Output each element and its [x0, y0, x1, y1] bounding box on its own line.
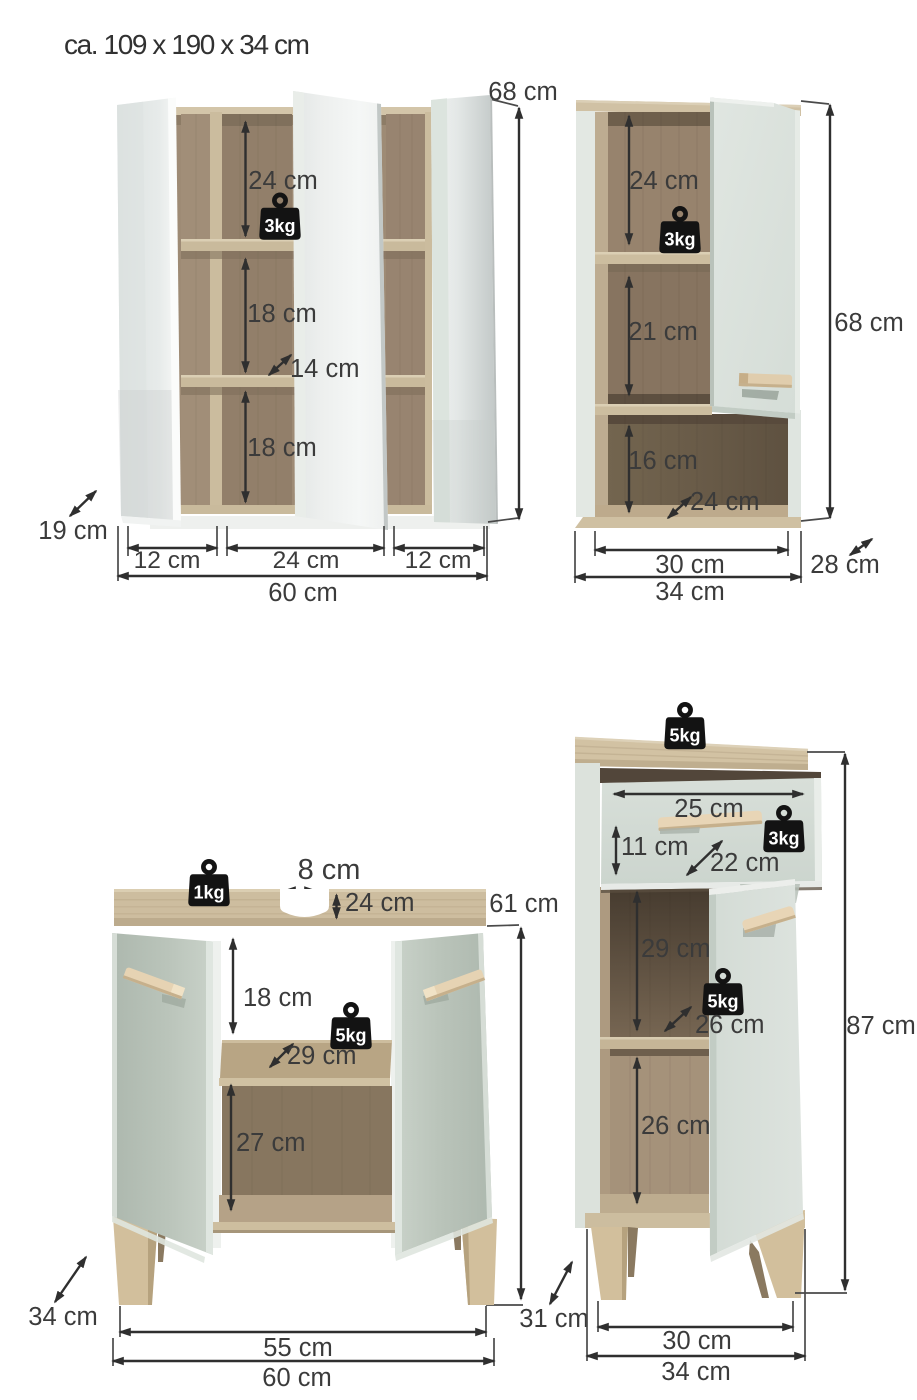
svg-text:68 cm: 68 cm	[834, 309, 903, 337]
svg-text:18 cm: 18 cm	[243, 984, 312, 1012]
svg-text:31 cm: 31 cm	[519, 1305, 588, 1333]
svg-text:5kg: 5kg	[707, 992, 738, 1012]
svg-text:18 cm: 18 cm	[247, 434, 316, 462]
svg-text:60 cm: 60 cm	[262, 1364, 331, 1392]
svg-text:5kg: 5kg	[669, 726, 700, 746]
svg-text:12 cm: 12 cm	[405, 547, 472, 574]
svg-text:30 cm: 30 cm	[662, 1327, 731, 1355]
svg-text:60 cm: 60 cm	[268, 579, 337, 607]
svg-text:55 cm: 55 cm	[263, 1334, 332, 1362]
svg-text:26 cm: 26 cm	[695, 1011, 764, 1039]
svg-text:24 cm: 24 cm	[345, 889, 414, 917]
svg-text:19 cm: 19 cm	[38, 517, 107, 545]
svg-text:26 cm: 26 cm	[641, 1112, 710, 1140]
svg-text:24 cm: 24 cm	[690, 488, 759, 516]
svg-text:29 cm: 29 cm	[641, 935, 710, 963]
svg-text:29 cm: 29 cm	[287, 1042, 356, 1070]
svg-text:3kg: 3kg	[264, 216, 295, 236]
svg-text:34 cm: 34 cm	[655, 578, 724, 606]
svg-text:34 cm: 34 cm	[661, 1358, 730, 1386]
svg-text:3kg: 3kg	[768, 829, 799, 849]
svg-text:12 cm: 12 cm	[134, 547, 201, 574]
svg-text:30 cm: 30 cm	[655, 551, 724, 579]
svg-text:21 cm: 21 cm	[628, 318, 697, 346]
svg-text:24 cm: 24 cm	[273, 547, 340, 574]
svg-text:27 cm: 27 cm	[236, 1129, 305, 1157]
svg-text:3kg: 3kg	[664, 230, 695, 250]
svg-text:24 cm: 24 cm	[629, 167, 698, 195]
svg-text:11 cm: 11 cm	[621, 833, 689, 861]
svg-text:18 cm: 18 cm	[247, 300, 316, 328]
svg-text:34 cm: 34 cm	[28, 1303, 97, 1331]
svg-text:87 cm: 87 cm	[846, 1012, 915, 1040]
svg-text:28 cm: 28 cm	[810, 551, 879, 579]
svg-text:8 cm: 8 cm	[298, 854, 361, 886]
svg-text:16 cm: 16 cm	[628, 447, 697, 475]
svg-text:22 cm: 22 cm	[710, 849, 779, 877]
svg-text:1kg: 1kg	[193, 883, 224, 903]
svg-text:24 cm: 24 cm	[248, 167, 317, 195]
svg-text:61 cm: 61 cm	[489, 890, 558, 918]
svg-text:25 cm: 25 cm	[674, 795, 743, 823]
svg-text:ca. 109 x 190 x 34 cm: ca. 109 x 190 x 34 cm	[64, 29, 309, 60]
svg-text:14 cm: 14 cm	[290, 355, 359, 383]
